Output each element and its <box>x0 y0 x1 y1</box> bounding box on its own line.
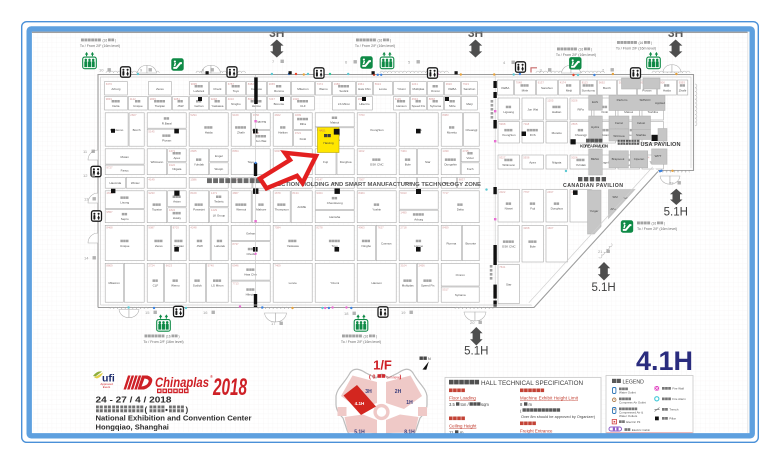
svg-text:8809: 8809 <box>106 264 113 268</box>
svg-text:20: 20 <box>470 320 475 325</box>
svg-text:Kinki: Kinki <box>601 110 608 114</box>
svg-text:Trench: Trench <box>669 408 679 412</box>
svg-text:2607: 2607 <box>130 113 137 117</box>
svg-text:4149: 4149 <box>148 178 155 182</box>
svg-text:RiFa: RiFa <box>578 108 585 112</box>
svg-text:9937: 9937 <box>274 149 281 153</box>
svg-text:Applied: Applied <box>655 101 665 105</box>
svg-text:5.1H: 5.1H <box>664 207 688 219</box>
svg-text:Koch: Koch <box>467 167 474 171</box>
svg-text:7717: 7717 <box>442 191 449 195</box>
svg-text:4662: 4662 <box>274 113 281 117</box>
svg-text:KEBA: KEBA <box>448 87 456 91</box>
svg-text:2022: 2022 <box>499 190 506 194</box>
svg-text:5936: 5936 <box>523 155 530 159</box>
svg-text:LS Mtron: LS Mtron <box>211 284 224 288</box>
svg-text:24 - 27 / 4 / 2018: 24 - 27 / 4 / 2018 <box>96 396 173 405</box>
svg-text:Electric Cabin: Electric Cabin <box>632 428 651 432</box>
svg-text:Yuhdak: Yuhdak <box>576 163 587 167</box>
svg-text:YoungSun: YoungSun <box>370 128 384 132</box>
svg-text:1330: 1330 <box>442 149 449 153</box>
svg-text:Apex: Apex <box>173 156 180 160</box>
svg-text:Mahore: Mahore <box>256 208 267 212</box>
svg-text:9557: 9557 <box>106 210 113 214</box>
svg-text:10: 10 <box>99 68 104 73</box>
svg-text:(16: (16 <box>364 334 369 338</box>
svg-text:Meiji: Meiji <box>466 102 473 106</box>
svg-text:): ) <box>179 334 180 338</box>
svg-text:7627: 7627 <box>378 226 385 230</box>
svg-text:2361: 2361 <box>358 82 365 86</box>
svg-text:Haomida: Haomida <box>110 181 122 185</box>
svg-text:Apex: Apex <box>529 161 536 165</box>
svg-text:8468: 8468 <box>106 226 113 230</box>
svg-text:7641: 7641 <box>499 265 506 269</box>
svg-text:CLF: CLF <box>300 104 306 108</box>
svg-text:Parform: Parform <box>617 98 628 102</box>
svg-text:5026: 5026 <box>571 98 578 102</box>
svg-text:Yutgar: Yutgar <box>590 209 599 213</box>
svg-text:7464: 7464 <box>400 149 407 153</box>
svg-text:5998: 5998 <box>499 122 506 126</box>
svg-text:4963: 4963 <box>358 226 365 230</box>
svg-text:Gefran: Gefran <box>194 104 204 108</box>
svg-text:Lonce: Lonce <box>289 281 298 285</box>
svg-text:1824: 1824 <box>169 208 176 212</box>
svg-text:RiFa: RiFa <box>300 122 307 126</box>
svg-text:Multiplas: Multiplas <box>402 284 414 288</box>
svg-text:Runma: Runma <box>446 242 456 246</box>
svg-text:8109: 8109 <box>190 191 197 195</box>
svg-text:To / From 2/F (16m level): To / From 2/F (16m level) <box>556 53 596 57</box>
svg-text:2718: 2718 <box>400 226 407 230</box>
svg-text:): ) <box>115 38 116 42</box>
svg-text:Mirle: Mirle <box>449 104 456 108</box>
svg-text:Labotek: Labotek <box>214 244 225 248</box>
svg-text:To / From 2/F (16m level): To / From 2/F (16m level) <box>80 44 120 48</box>
svg-text:8134: 8134 <box>292 191 299 195</box>
svg-text:9727: 9727 <box>106 166 113 170</box>
svg-text:Haida: Haida <box>205 130 213 134</box>
svg-text:To / From 2/F (16m level): To / From 2/F (16m level) <box>355 44 395 48</box>
svg-text:N: N <box>428 357 431 361</box>
svg-text:3104: 3104 <box>400 264 407 268</box>
svg-text:6946: 6946 <box>232 264 239 268</box>
svg-text:Asian: Asian <box>173 200 181 204</box>
svg-text:Fire Wall: Fire Wall <box>672 387 684 391</box>
svg-text:Indust: Indust <box>637 121 645 125</box>
svg-text:Labotek: Labotek <box>194 89 205 93</box>
svg-text:To / From 2/F (16m level): To / From 2/F (16m level) <box>616 47 656 51</box>
svg-text:SMSCO: SMSCO <box>639 98 651 102</box>
svg-text:8113: 8113 <box>582 80 588 84</box>
svg-text:CANADIAN PAVILION: CANADIAN PAVILION <box>563 183 623 189</box>
svg-text:5517: 5517 <box>442 287 449 291</box>
svg-text:9692: 9692 <box>599 80 606 84</box>
svg-text:3.5: 3.5 <box>449 402 455 407</box>
svg-text:Nissei: Nissei <box>505 207 514 211</box>
svg-text:Sodick: Sodick <box>193 284 203 288</box>
svg-text:Jon Wai: Jon Wai <box>527 108 538 112</box>
svg-text:Mirle: Mirle <box>522 88 529 92</box>
svg-text:CLF: CLF <box>153 284 159 288</box>
svg-text:): ) <box>400 375 402 381</box>
svg-text:8083: 8083 <box>442 113 449 117</box>
svg-text:1490: 1490 <box>400 211 407 215</box>
svg-text:9087: 9087 <box>148 226 155 230</box>
svg-text:Wensui: Wensui <box>236 208 246 212</box>
svg-text:7797: 7797 <box>523 190 530 194</box>
svg-text:Event: Event <box>103 385 111 389</box>
svg-text:4699: 4699 <box>295 113 302 117</box>
svg-text:WPT: WPT <box>655 154 662 158</box>
svg-text:Zeres: Zeres <box>155 244 163 248</box>
svg-text:3620: 3620 <box>446 82 453 86</box>
svg-text:2H: 2H <box>395 389 402 395</box>
svg-text:LK Group: LK Group <box>213 214 226 218</box>
svg-text:Donghua: Donghua <box>340 160 352 164</box>
svg-text:Sepro: Sepro <box>121 217 129 221</box>
svg-text:7048: 7048 <box>516 80 523 84</box>
svg-text:1162: 1162 <box>358 149 364 153</box>
svg-text:Husky: Husky <box>173 216 182 220</box>
svg-text:4010: 4010 <box>228 97 235 101</box>
svg-text:Delta: Delta <box>112 104 119 108</box>
svg-text:7409: 7409 <box>274 264 281 268</box>
svg-text:HALL TECHNICAL SPECIFICATION: HALL TECHNICAL SPECIFICATION <box>481 381 583 387</box>
svg-text:Water Outlet: Water Outlet <box>619 391 636 395</box>
svg-text:4174: 4174 <box>560 80 567 84</box>
svg-text:Delta: Delta <box>457 208 464 212</box>
svg-text:1471: 1471 <box>211 191 218 195</box>
svg-text:Chuangji: Chuangji <box>575 133 587 137</box>
svg-text:9393: 9393 <box>679 80 686 84</box>
svg-text:Omron: Omron <box>431 89 441 93</box>
svg-text:Powerjet: Powerjet <box>193 208 205 212</box>
svg-text:Moretto: Moretto <box>447 130 458 134</box>
svg-text:2497: 2497 <box>547 190 554 194</box>
svg-text:sqm: sqm <box>481 402 489 407</box>
svg-text:19: 19 <box>401 310 406 315</box>
svg-text:Haitian: Haitian <box>552 110 562 114</box>
svg-text:Runma: Runma <box>274 89 284 93</box>
svg-text:Wemo: Wemo <box>171 284 180 288</box>
svg-text:Floor Loading: Floor Loading <box>449 396 476 401</box>
svg-text:): ) <box>390 38 391 42</box>
svg-text:Hwa Chin: Hwa Chin <box>358 87 371 91</box>
svg-text:): ) <box>651 41 652 45</box>
svg-text:2724: 2724 <box>148 264 155 268</box>
svg-text:( 0: ( 0 <box>369 375 375 381</box>
svg-text:Bole: Bole <box>530 245 536 249</box>
svg-text:Electric Pit: Electric Pit <box>626 420 640 424</box>
svg-text:(16: (16 <box>639 41 644 45</box>
svg-text:JSW: JSW <box>177 104 184 108</box>
svg-text:8278: 8278 <box>316 226 323 230</box>
svg-text:Haida: Haida <box>663 88 671 92</box>
svg-text:1205: 1205 <box>547 98 554 102</box>
svg-text:Haitian: Haitian <box>278 130 288 134</box>
svg-text:Arburg: Arburg <box>111 87 120 91</box>
svg-text:2665: 2665 <box>190 149 197 153</box>
svg-text:Harmo: Harmo <box>252 104 261 108</box>
svg-text:Wintec: Wintec <box>131 181 140 185</box>
svg-text:Sodick: Sodick <box>339 89 349 93</box>
svg-text:Water Outlets: Water Outlets <box>619 414 638 418</box>
svg-text:To / From 2/F (16m level): To / From 2/F (16m level) <box>637 227 677 231</box>
svg-text:1679: 1679 <box>274 191 281 195</box>
svg-text:9233: 9233 <box>148 191 155 195</box>
svg-text:Check: Check <box>213 87 222 91</box>
svg-text:2065: 2065 <box>269 82 276 86</box>
svg-text:Wittmann: Wittmann <box>502 163 515 167</box>
svg-text:8464: 8464 <box>358 191 365 195</box>
svg-text:7247: 7247 <box>269 97 276 101</box>
svg-text:Victor: Victor <box>466 156 474 160</box>
svg-text:7763: 7763 <box>358 113 365 117</box>
svg-text:2018: 2018 <box>212 374 247 401</box>
svg-text:Yizumi: Yizumi <box>397 87 406 91</box>
svg-text:Wemo: Wemo <box>319 87 328 91</box>
svg-text:17: 17 <box>271 321 276 326</box>
svg-text:2565: 2565 <box>571 122 578 126</box>
svg-text:Ningbo: Ningbo <box>362 244 372 248</box>
svg-text:6137: 6137 <box>538 80 545 84</box>
svg-text:7474: 7474 <box>317 82 324 86</box>
svg-text:Tianjian: Tianjian <box>155 104 166 108</box>
svg-text:1H: 1H <box>406 400 413 406</box>
svg-text:GSK CNC: GSK CNC <box>370 163 385 167</box>
svg-text:Wittmann: Wittmann <box>151 160 164 164</box>
svg-text:Haixing: Haixing <box>323 141 334 145</box>
svg-text:Sytrama: Sytrama <box>430 104 442 108</box>
svg-text:To / From 2/F (16m level): To / From 2/F (16m level) <box>341 340 381 344</box>
svg-text:To / From 2/F (16m level): To / From 2/F (16m level) <box>143 340 183 344</box>
svg-text:YoungSun: YoungSun <box>502 133 516 137</box>
svg-text:2456: 2456 <box>419 264 426 268</box>
svg-text:13: 13 <box>84 197 89 202</box>
svg-text:LS Mtron: LS Mtron <box>338 102 351 106</box>
svg-text:Topstar: Topstar <box>152 208 162 212</box>
svg-text:Matsui: Matsui <box>330 121 339 125</box>
svg-text:4.1H: 4.1H <box>636 346 693 376</box>
svg-text:SIM: SIM <box>612 195 618 199</box>
svg-text:Donghua: Donghua <box>551 207 564 211</box>
svg-text:15: 15 <box>145 310 150 315</box>
svg-text:5145: 5145 <box>148 130 155 134</box>
svg-text:Ceiling Height: Ceiling Height <box>449 424 477 429</box>
svg-text:ChenHsong: ChenHsong <box>327 201 343 205</box>
svg-text:): ) <box>376 334 377 338</box>
svg-text:EAS: EAS <box>592 100 598 104</box>
svg-text:Tayu: Tayu <box>248 160 255 164</box>
svg-text:22: 22 <box>669 181 674 186</box>
svg-text:Engel: Engel <box>215 154 223 158</box>
svg-text:1607: 1607 <box>547 226 554 230</box>
svg-text:Motan: Motan <box>121 155 130 159</box>
svg-text:Speed Fix: Speed Fix <box>412 104 426 108</box>
svg-text:1229: 1229 <box>211 208 218 212</box>
svg-text:(16: (16 <box>166 334 171 338</box>
svg-text:Star: Star <box>425 160 431 164</box>
svg-text:6376: 6376 <box>106 82 113 86</box>
svg-text:LEGEND: LEGEND <box>623 380 645 386</box>
svg-text:Omron: Omron <box>456 273 466 277</box>
svg-text:USA PAVILION: USA PAVILION <box>641 142 681 148</box>
svg-text:Unique: Unique <box>120 244 130 248</box>
svg-text:Borunte: Borunte <box>274 102 285 106</box>
svg-text:9721: 9721 <box>295 131 302 135</box>
svg-text:16: 16 <box>203 310 208 315</box>
svg-text:4A51: 4A51 <box>319 128 326 132</box>
svg-text:Borch: Borch <box>603 86 611 90</box>
svg-text:Witrmoa: Witrmoa <box>613 134 624 138</box>
svg-text:9169: 9169 <box>232 113 239 117</box>
svg-text:Woojin: Woojin <box>215 167 224 171</box>
svg-text:1/F: 1/F <box>373 358 392 373</box>
svg-text:Yaskawa: Yaskawa <box>287 244 299 248</box>
svg-text:7923: 7923 <box>463 82 470 86</box>
svg-text:(16: (16 <box>378 38 383 42</box>
svg-text:4.1H: 4.1H <box>355 401 365 406</box>
svg-text:8054: 8054 <box>232 149 239 153</box>
svg-text:Zeres: Zeres <box>156 87 164 91</box>
svg-text:3H: 3H <box>365 389 372 395</box>
svg-text:Yushin: Yushin <box>372 208 381 212</box>
svg-text:GSK CNC: GSK CNC <box>502 245 517 249</box>
svg-text:8459: 8459 <box>442 226 449 230</box>
svg-text:Sanshun: Sanshun <box>541 86 553 90</box>
svg-text:Compress Air Outlet: Compress Air Outlet <box>619 401 646 405</box>
svg-text:Meiji: Meiji <box>566 88 573 92</box>
svg-text:9849: 9849 <box>106 97 113 101</box>
svg-text:Fuji: Fuji <box>530 207 535 211</box>
svg-text:Kinki: Kinki <box>300 137 307 141</box>
svg-text:5294: 5294 <box>190 113 197 117</box>
svg-text:Yaskawa: Yaskawa <box>211 104 223 108</box>
svg-text:): ) <box>664 221 665 225</box>
svg-text:4248: 4248 <box>190 226 197 230</box>
svg-text:6623: 6623 <box>166 264 173 268</box>
svg-text:Multiplas: Multiplas <box>412 87 424 91</box>
svg-text:Lisong: Lisong <box>120 201 129 205</box>
svg-text:BESA: BESA <box>591 157 599 161</box>
svg-text:5013: 5013 <box>400 191 407 195</box>
svg-text:Starlike: Starlike <box>636 133 646 137</box>
svg-text:7584: 7584 <box>274 226 281 230</box>
svg-text:FCS: FCS <box>530 133 536 137</box>
svg-text:Hilectro: Hilectro <box>359 102 370 106</box>
svg-text:Thompson: Thompson <box>275 208 290 212</box>
svg-text:Check: Check <box>246 252 255 256</box>
svg-text:7713: 7713 <box>232 282 239 286</box>
svg-text:3268: 3268 <box>523 226 530 230</box>
svg-text:5.1H: 5.1H <box>464 346 488 358</box>
svg-text:Borch: Borch <box>133 128 141 132</box>
svg-text:KOREA PAVILION: KOREA PAVILION <box>580 143 608 148</box>
svg-text:Arburg: Arburg <box>414 217 423 221</box>
svg-text:Speed Fix: Speed Fix <box>421 284 435 288</box>
svg-text:Piovan: Piovan <box>162 139 172 143</box>
svg-text:Bole: Bole <box>405 163 411 167</box>
svg-text:Hanwha: Hanwha <box>329 215 340 219</box>
svg-text:Chuangji: Chuangji <box>465 128 477 132</box>
svg-text:Niigata: Niigata <box>552 161 562 165</box>
svg-text:Dongshin: Dongshin <box>444 163 457 167</box>
svg-text:Sytrama: Sytrama <box>455 293 466 297</box>
svg-text:Over 8m should be approved by: Over 8m should be approved by Organizer) <box>521 415 596 419</box>
svg-text:Liguang: Liguang <box>503 110 514 114</box>
svg-text:Pillar: Pillar <box>669 417 676 421</box>
svg-text:5624: 5624 <box>375 82 382 86</box>
svg-text:Ningbo: Ningbo <box>231 102 241 106</box>
svg-text:Tederic: Tederic <box>214 200 224 204</box>
svg-text:Cosmos: Cosmos <box>381 242 392 246</box>
svg-text:8703: 8703 <box>173 226 180 230</box>
svg-text:Toyo: Toyo <box>233 89 240 93</box>
svg-text:(16: (16 <box>579 47 584 51</box>
svg-text:Zhafir: Zhafir <box>237 130 245 134</box>
svg-text:Lonce: Lonce <box>379 87 388 91</box>
svg-text:7118: 7118 <box>523 122 529 126</box>
svg-text:9324: 9324 <box>316 191 323 195</box>
svg-text:ton /: ton / <box>461 402 470 407</box>
svg-text:m: m <box>529 402 533 407</box>
svg-text:Zhafir: Zhafir <box>679 88 687 92</box>
svg-text:Unique: Unique <box>133 104 143 108</box>
svg-text:(16: (16 <box>103 38 108 42</box>
svg-text:Sanshun: Sanshun <box>463 87 475 91</box>
svg-text:14: 14 <box>84 256 89 261</box>
svg-text:Hanson: Hanson <box>372 281 383 285</box>
svg-text:Chinaplas: Chinaplas <box>155 374 209 390</box>
svg-text:Hydra: Hydra <box>591 125 599 129</box>
svg-text:Machine Exhibit Height Limit: Machine Exhibit Height Limit <box>520 396 579 401</box>
svg-text:8382: 8382 <box>248 82 255 86</box>
svg-text:2241: 2241 <box>412 82 419 86</box>
svg-text:): ) <box>591 47 592 51</box>
svg-text:(16: (16 <box>652 221 657 225</box>
svg-text:ACME: ACME <box>297 205 306 209</box>
svg-text:21: 21 <box>598 249 603 254</box>
svg-text:8737: 8737 <box>232 242 239 246</box>
svg-text:4867: 4867 <box>232 191 239 195</box>
svg-text:National Exhibition and Conven: National Exhibition and Convention Cente… <box>96 414 252 423</box>
svg-text:Farrel: Farrel <box>615 121 623 125</box>
svg-text:18: 18 <box>344 311 349 316</box>
svg-text:Moretto: Moretto <box>552 131 563 135</box>
svg-text:Yizumi: Yizumi <box>330 281 339 285</box>
svg-text:1586: 1586 <box>190 178 197 182</box>
svg-text:Hongqiao, Shanghai: Hongqiao, Shanghai <box>96 423 169 432</box>
svg-text:Hanson: Hanson <box>396 104 407 108</box>
svg-text:5740: 5740 <box>208 264 215 268</box>
svg-text:R.Baral: R.Baral <box>162 121 172 125</box>
svg-text:9356: 9356 <box>253 113 260 117</box>
svg-text:Liguang: Liguang <box>256 120 267 124</box>
svg-text:Star: Star <box>506 283 512 287</box>
svg-text:Fanuc: Fanuc <box>121 168 130 172</box>
svg-text:KEBA: KEBA <box>501 86 509 90</box>
svg-text:Gefran: Gefran <box>246 231 256 235</box>
svg-text:5.1H: 5.1H <box>591 282 615 294</box>
svg-text:Niigata: Niigata <box>172 167 181 171</box>
svg-text:Milacron: Milacron <box>297 87 309 91</box>
svg-text:Jon Wai: Jon Wai <box>256 139 267 143</box>
svg-text:Milacron: Milacron <box>109 281 121 285</box>
svg-text:Sumitomo: Sumitomo <box>582 88 596 92</box>
svg-text:Borunte: Borunte <box>466 242 477 246</box>
